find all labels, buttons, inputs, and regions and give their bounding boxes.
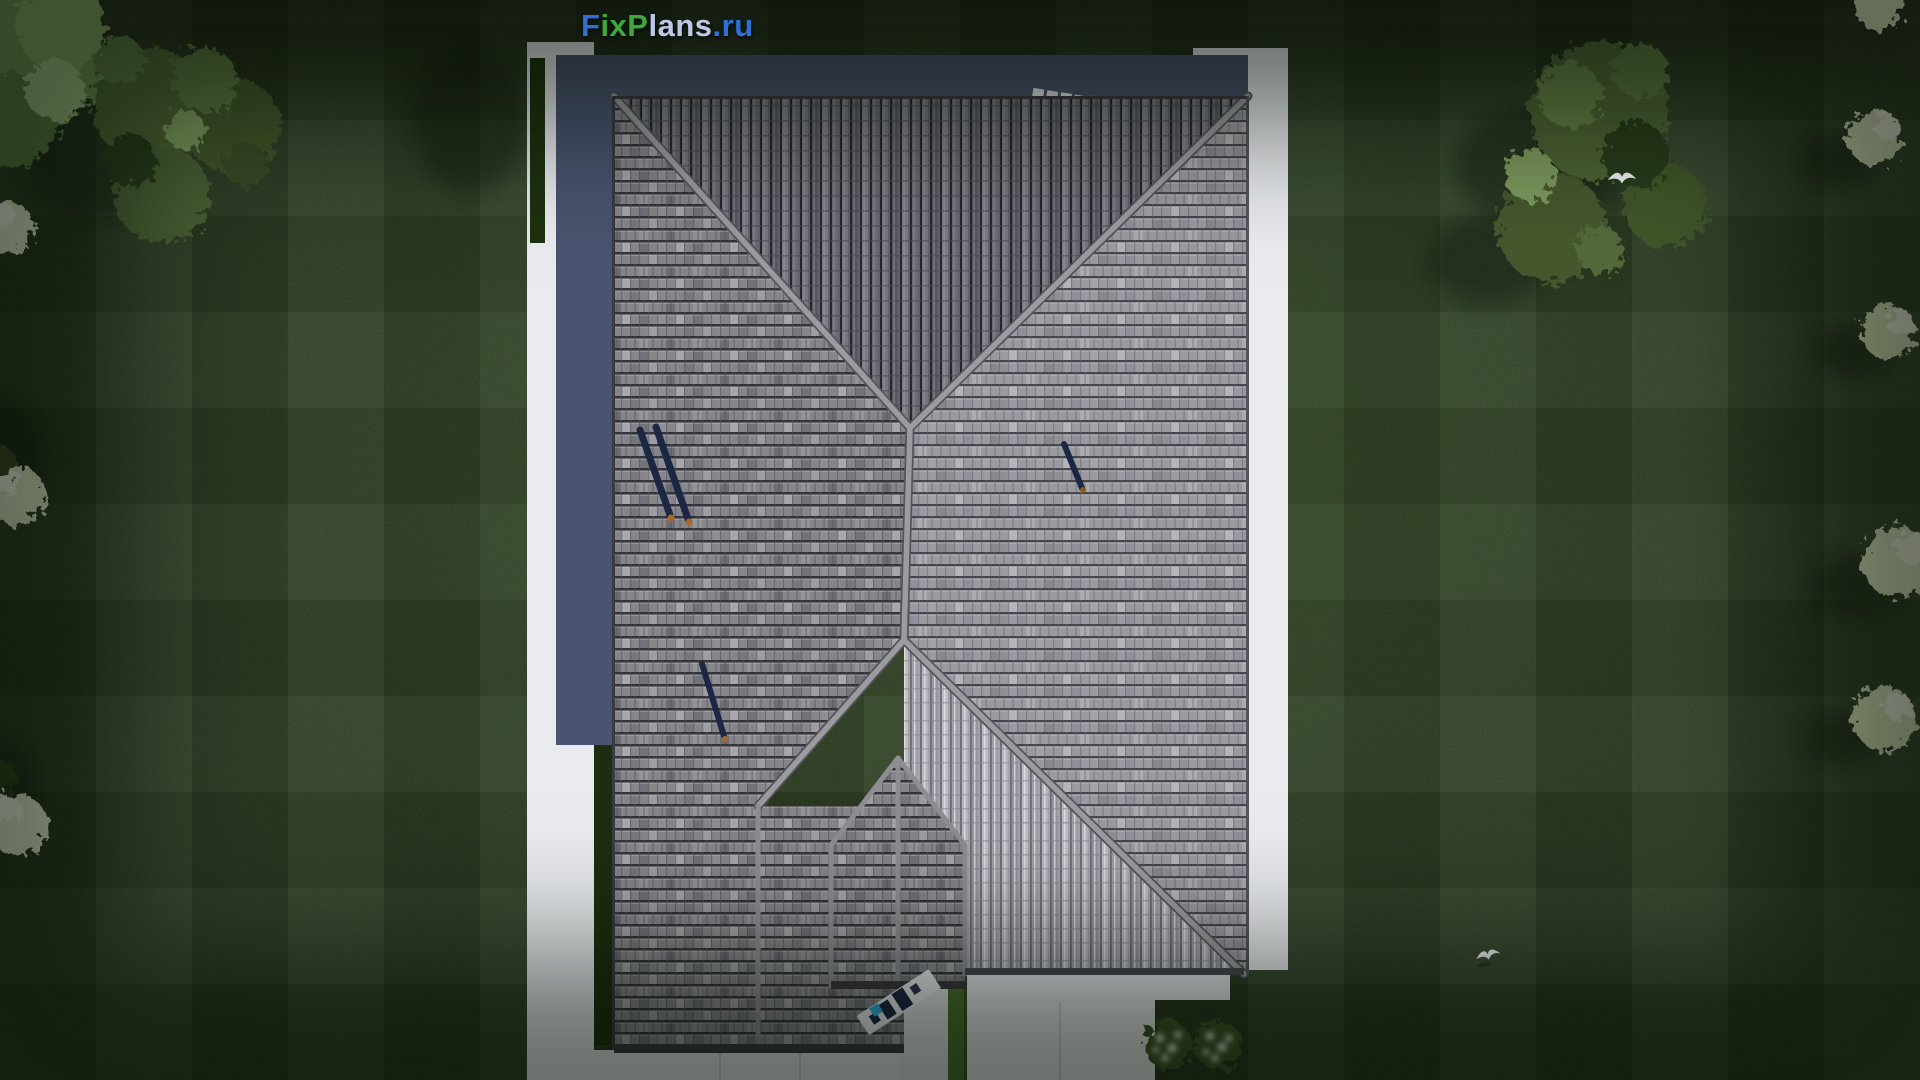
watermark-segment: ix xyxy=(600,8,627,43)
render-overlay xyxy=(0,0,1920,1080)
roof xyxy=(612,96,1249,1053)
paving-terrace-lower xyxy=(967,1000,1155,1080)
watermark-segment: F xyxy=(581,8,600,43)
grass-strip-edge xyxy=(964,985,967,1080)
aerial-house-render: FixPlans.ru xyxy=(0,0,1920,1080)
watermark-segment: lans xyxy=(648,8,712,43)
wall-shadow-top xyxy=(556,55,1248,98)
site-watermark: FixPlans.ru xyxy=(581,8,754,44)
wall-shadow-left xyxy=(556,55,614,745)
house xyxy=(527,42,1288,1080)
watermark-segment: .ru xyxy=(713,8,754,43)
paving-right-strip xyxy=(1248,48,1288,970)
grass-sliver-left xyxy=(594,745,614,1045)
grass-sliver-top-left xyxy=(530,58,545,243)
watermark-segment: P xyxy=(627,8,648,43)
